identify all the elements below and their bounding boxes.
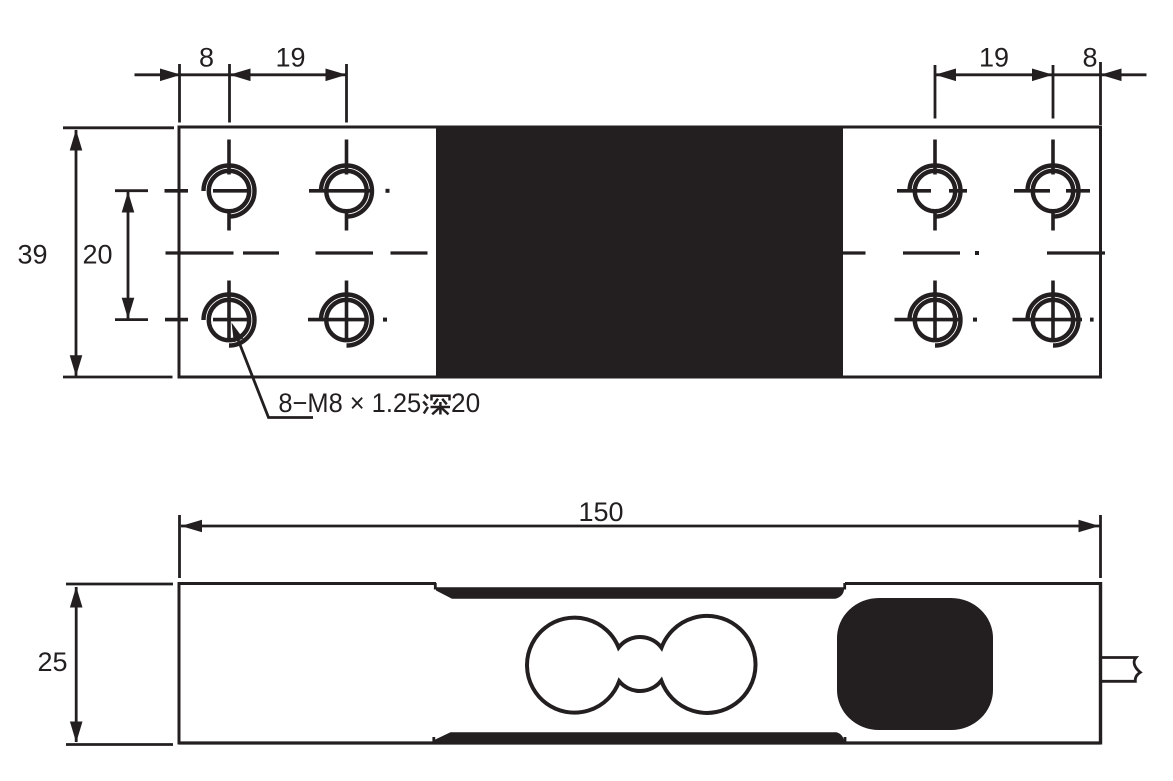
svg-text:8−M8 × 1.25: 8−M8 × 1.25 [278, 388, 421, 418]
svg-text:8: 8 [1082, 43, 1097, 73]
svg-text:25: 25 [37, 647, 67, 677]
svg-text:150: 150 [578, 497, 623, 527]
svg-text:19: 19 [979, 43, 1009, 73]
svg-text:39: 39 [17, 240, 47, 270]
svg-text:8: 8 [199, 43, 214, 73]
svg-text:20: 20 [82, 240, 112, 270]
svg-text:20: 20 [451, 388, 480, 418]
svg-text:19: 19 [275, 43, 305, 73]
